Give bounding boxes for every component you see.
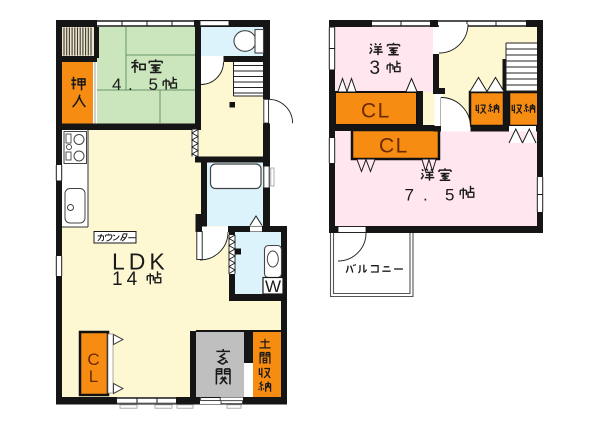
svg-text:.: . xyxy=(423,186,428,205)
svg-text:5: 5 xyxy=(149,75,158,94)
svg-text:.: . xyxy=(128,75,133,94)
svg-text:4: 4 xyxy=(112,75,121,94)
svg-text:L: L xyxy=(89,367,98,386)
svg-text:14: 14 xyxy=(112,269,141,290)
svg-text:7: 7 xyxy=(405,186,414,205)
svg-text:CL: CL xyxy=(379,135,409,158)
svg-text:W: W xyxy=(265,277,281,296)
svg-text:CL: CL xyxy=(361,100,391,123)
svg-text:3: 3 xyxy=(370,58,381,79)
svg-text:5: 5 xyxy=(445,186,454,205)
